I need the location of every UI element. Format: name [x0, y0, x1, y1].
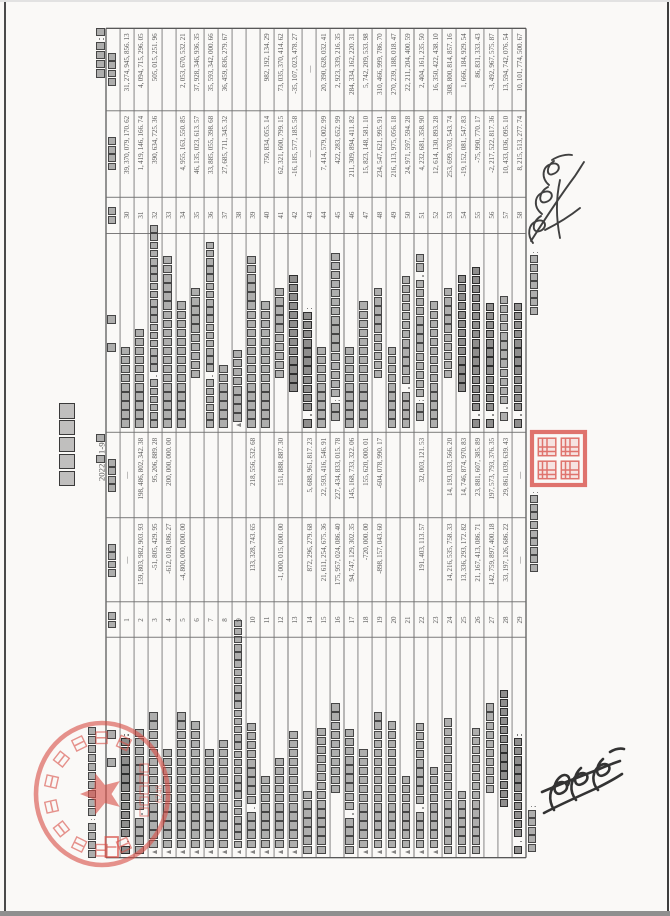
svg-text:6248: 6248 [154, 785, 164, 804]
